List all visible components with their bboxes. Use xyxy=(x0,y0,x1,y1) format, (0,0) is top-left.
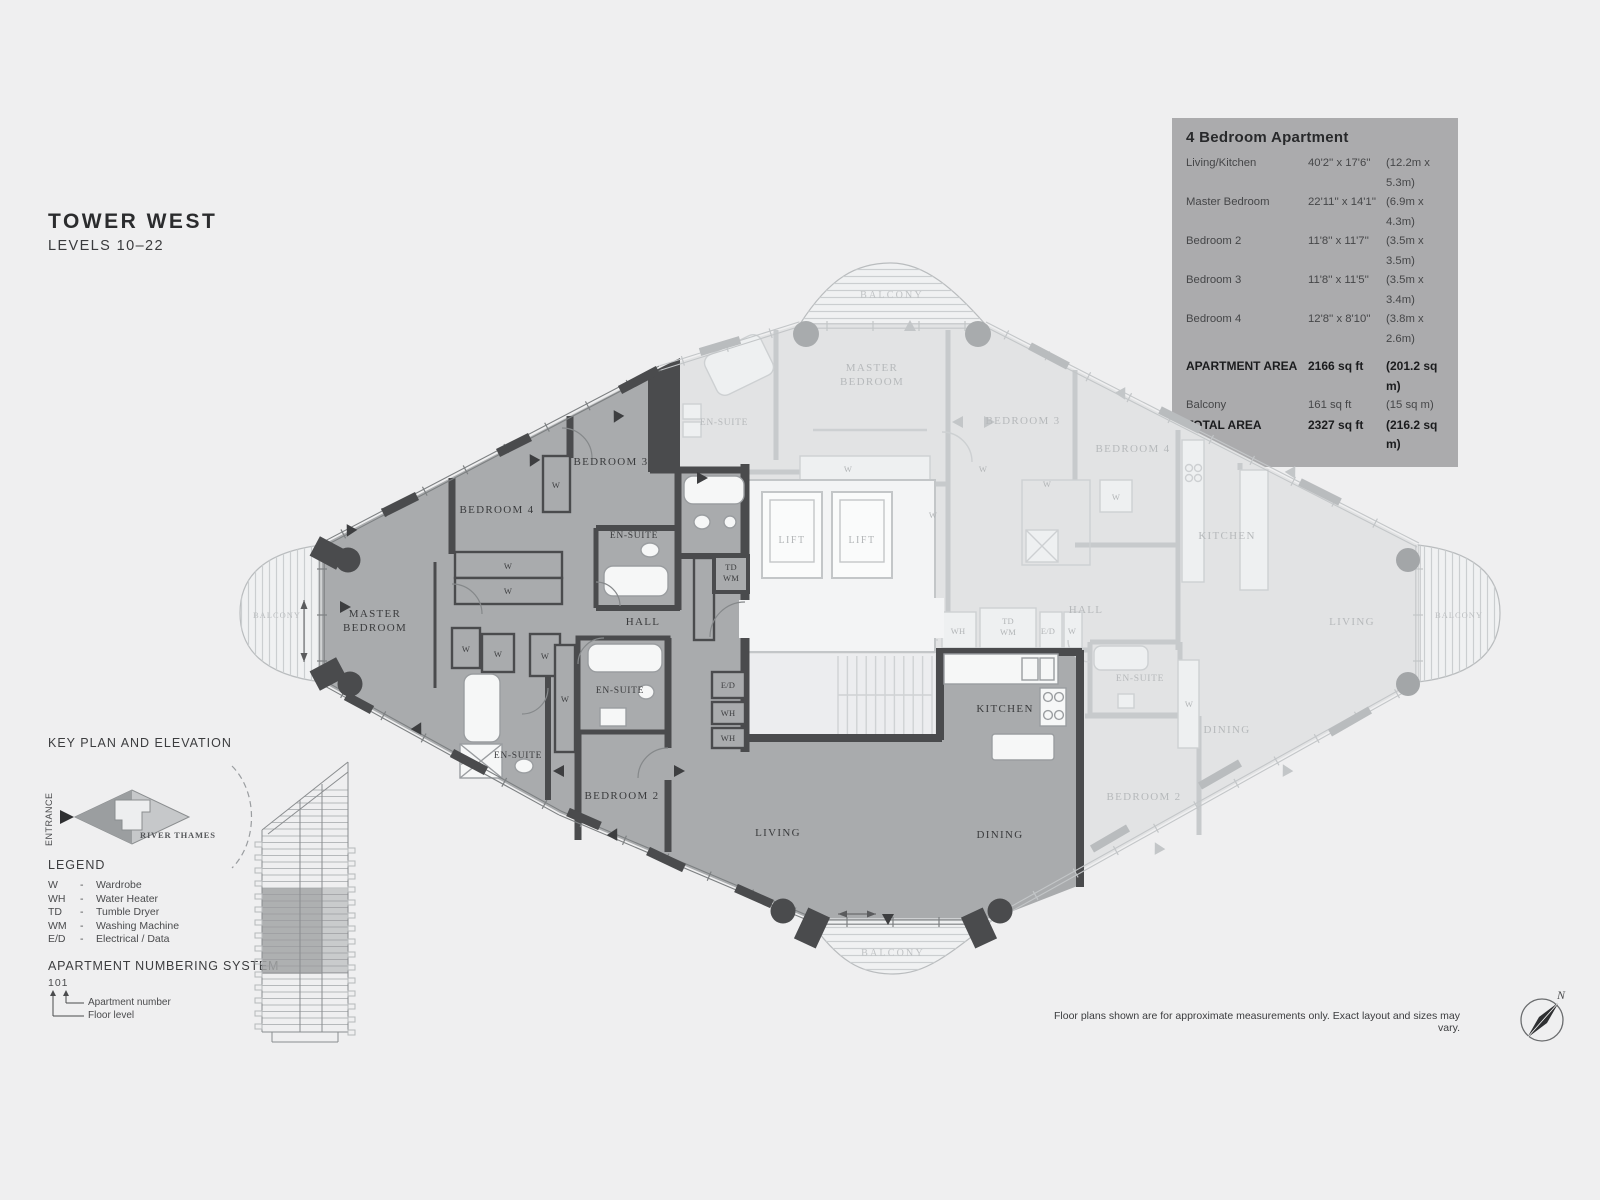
room-label: EN-SUITE xyxy=(596,686,644,696)
room-label: WH xyxy=(721,733,736,743)
room-label: W xyxy=(541,651,549,661)
room-label: WH xyxy=(721,708,736,718)
room-label: BALCONY xyxy=(861,948,925,959)
room-label: TDWM xyxy=(1000,616,1016,637)
room-label: EN-SUITE xyxy=(494,751,542,761)
entrance-label: ENTRANCE xyxy=(44,792,54,846)
room-label: BEDROOM 3 xyxy=(574,456,649,468)
room-label: LIVING xyxy=(755,827,801,839)
room-label: KITCHEN xyxy=(976,703,1033,715)
room-label: W xyxy=(504,561,512,571)
room-label: BEDROOM 4 xyxy=(1096,443,1171,455)
compass-north-label: N xyxy=(1556,988,1566,1002)
river-line xyxy=(232,766,252,868)
floor-plan-drawing: MASTERBEDROOMBEDROOM 4BEDROOM 3EN-SUITEH… xyxy=(0,0,1600,1200)
room-label: W xyxy=(1112,492,1120,502)
room-label: W xyxy=(494,649,502,659)
room-label: BEDROOM 3 xyxy=(986,415,1061,427)
room-label: BALCONY xyxy=(1435,610,1483,620)
room-label: LIVING xyxy=(1329,616,1375,628)
room-label: W xyxy=(462,644,470,654)
core-lifts-stairs xyxy=(745,480,944,736)
room-label: LIFT xyxy=(778,535,805,546)
room-label: WH xyxy=(951,626,966,636)
room-label: W xyxy=(1185,699,1193,709)
room-label: W xyxy=(504,586,512,596)
room-label: BEDROOM 4 xyxy=(460,504,535,516)
room-label: LIFT xyxy=(848,535,875,546)
room-label: KITCHEN xyxy=(1198,530,1255,542)
room-label: HALL xyxy=(1069,604,1104,616)
room-label: DINING xyxy=(977,829,1024,841)
compass: N xyxy=(1521,988,1566,1041)
room-label: BALCONY xyxy=(253,610,301,620)
room-label: W xyxy=(844,464,852,474)
entrance-arrow-icon xyxy=(60,810,74,824)
tower-elevation xyxy=(255,762,355,1042)
room-label: BALCONY xyxy=(860,290,924,301)
room-label: EN-SUITE xyxy=(610,531,658,541)
room-label: E/D xyxy=(721,680,735,690)
room-label: DINING xyxy=(1204,724,1251,736)
room-label: W xyxy=(979,464,987,474)
key-plan: ENTRANCE RIVER THAMES xyxy=(44,766,252,868)
room-label: BEDROOM 2 xyxy=(1107,791,1182,803)
river-thames-label: RIVER THAMES xyxy=(140,830,216,840)
room-label: HALL xyxy=(626,616,661,628)
room-label: W xyxy=(1043,479,1051,489)
room-label: W xyxy=(552,480,560,490)
room-label: W xyxy=(1068,626,1076,636)
room-label: TDWM xyxy=(723,562,739,583)
room-label: EN-SUITE xyxy=(700,418,748,428)
room-label: W xyxy=(561,694,569,704)
room-label: EN-SUITE xyxy=(1116,674,1164,684)
numbering-bracket xyxy=(50,990,84,1016)
room-label: E/D xyxy=(1041,626,1055,636)
room-label: W xyxy=(929,510,937,520)
room-label: BEDROOM 2 xyxy=(585,790,660,802)
